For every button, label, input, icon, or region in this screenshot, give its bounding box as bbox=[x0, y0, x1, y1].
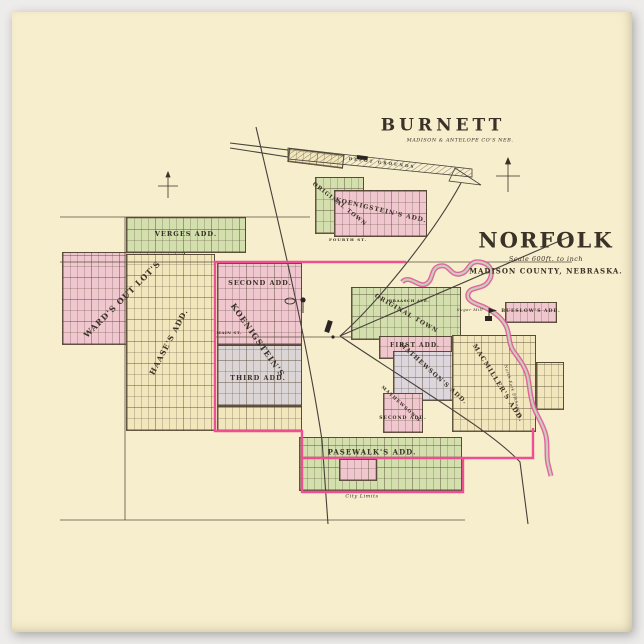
second-add-label: SECOND ADD. bbox=[228, 280, 292, 287]
verges-add-label: VERGES ADD. bbox=[155, 231, 217, 238]
pasewalks-add-label: PASEWALK'S ADD. bbox=[328, 449, 417, 456]
norfolk-depot-mark bbox=[324, 320, 332, 333]
junction-dot bbox=[331, 335, 334, 338]
burnett-subtitle: MADISON & ANTELOPE CO'S NEB. bbox=[407, 139, 514, 144]
braasch-ave-label: BRAASCH AVE. bbox=[389, 299, 430, 303]
map-canvas: BURNETT MADISON & ANTELOPE CO'S NEB. ORI… bbox=[0, 0, 644, 644]
sugar-mill-label: Sugar Mill bbox=[457, 308, 483, 312]
burnett-fourth-st-label: FOURTH ST. bbox=[329, 238, 367, 242]
compass-right bbox=[496, 158, 520, 192]
norfolk-scale: Scale 600ft. to inch bbox=[509, 256, 583, 263]
map-poster: BURNETT MADISON & ANTELOPE CO'S NEB. ORI… bbox=[12, 12, 632, 632]
norfolk-county: MADISON COUNTY, NEBRASKA. bbox=[469, 268, 623, 275]
water-tower-icon bbox=[300, 297, 305, 313]
pond bbox=[285, 298, 295, 304]
bueslows-add-label: BUESLOW'S ADD. bbox=[501, 310, 560, 315]
burnett-title: BURNETT bbox=[381, 118, 506, 135]
railroads bbox=[230, 127, 571, 524]
third-add-label: THIRD ADD. bbox=[230, 375, 286, 382]
norfolk-title: NORFOLK bbox=[478, 230, 613, 251]
mathewsons-second-add-label-2: SECOND ADD. bbox=[379, 417, 426, 422]
main-st-label: MAIN ST. bbox=[216, 331, 241, 335]
city-limits-label: City Limits bbox=[345, 495, 378, 500]
poster-mockup: BURNETT MADISON & ANTELOPE CO'S NEB. ORI… bbox=[0, 0, 644, 644]
compass-left bbox=[158, 172, 178, 198]
